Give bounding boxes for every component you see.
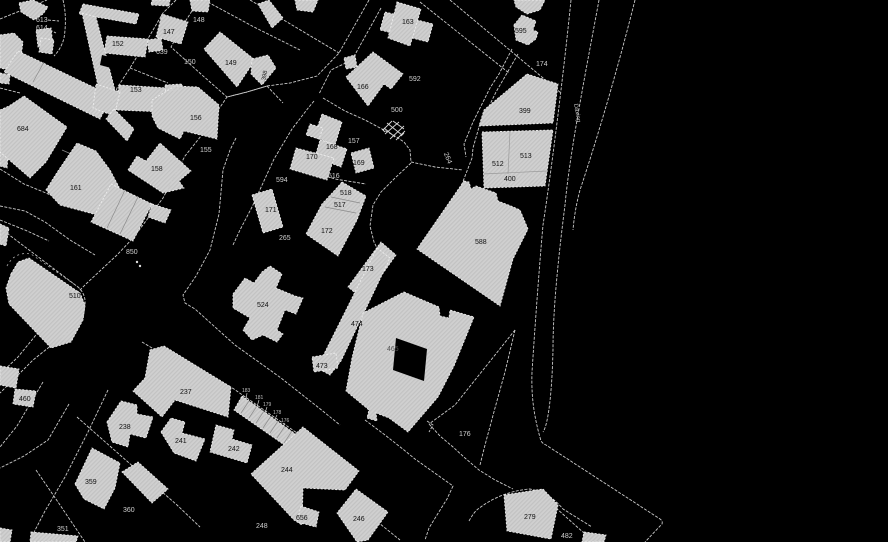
svg-text:181: 181 [255, 395, 264, 401]
svg-text:237: 237 [180, 389, 192, 396]
svg-text:510: 510 [69, 293, 81, 300]
svg-text:359: 359 [85, 479, 97, 486]
svg-text:473: 473 [316, 363, 328, 370]
svg-text:850: 850 [126, 249, 138, 256]
svg-text:614: 614 [36, 25, 48, 32]
svg-text:149: 149 [225, 60, 237, 67]
svg-text:166: 166 [357, 84, 369, 91]
svg-text:176: 176 [281, 418, 290, 424]
svg-text:148: 148 [193, 17, 205, 24]
svg-text:241: 241 [175, 438, 187, 445]
svg-text:265: 265 [279, 235, 291, 242]
svg-text:351: 351 [57, 526, 69, 533]
svg-text:179: 179 [263, 402, 272, 408]
svg-text:613: 613 [36, 17, 48, 24]
svg-text:157: 157 [348, 138, 360, 145]
svg-text:168: 168 [326, 144, 338, 151]
svg-text:482: 482 [561, 533, 573, 540]
svg-text:244: 244 [281, 467, 293, 474]
svg-text:161: 161 [70, 185, 82, 192]
svg-text:516: 516 [328, 173, 340, 180]
svg-text:176: 176 [459, 431, 471, 438]
svg-text:513: 513 [520, 153, 532, 160]
svg-text:465: 465 [387, 346, 399, 353]
svg-text:684: 684 [17, 126, 29, 133]
svg-text:474: 474 [351, 321, 363, 328]
svg-text:588: 588 [475, 239, 487, 246]
svg-text:360: 360 [123, 507, 135, 514]
svg-text:170: 170 [306, 154, 318, 161]
svg-text:172: 172 [321, 228, 333, 235]
svg-text:500: 500 [391, 107, 403, 114]
svg-text:154: 154 [168, 86, 180, 93]
svg-text:399: 399 [519, 108, 531, 115]
svg-text:248: 248 [256, 523, 268, 530]
svg-text:512: 512 [492, 161, 504, 168]
svg-text:460: 460 [19, 396, 31, 403]
svg-text:592: 592 [409, 76, 421, 83]
svg-text:156: 156 [190, 115, 202, 122]
svg-text:595: 595 [515, 28, 527, 35]
svg-text:238: 238 [119, 424, 131, 431]
svg-text:178: 178 [273, 410, 282, 416]
svg-text:169: 169 [353, 160, 365, 167]
svg-text:594: 594 [276, 177, 288, 184]
svg-text:153: 153 [130, 87, 142, 94]
svg-text:174: 174 [536, 61, 548, 68]
svg-text:152: 152 [112, 41, 124, 48]
svg-text:158: 158 [151, 166, 163, 173]
svg-text:518: 518 [340, 190, 352, 197]
svg-text:246: 246 [353, 516, 365, 523]
svg-text:171: 171 [265, 207, 277, 214]
svg-text:656: 656 [296, 515, 308, 522]
svg-text:147: 147 [163, 29, 175, 36]
svg-text:183: 183 [242, 388, 251, 394]
svg-text:517: 517 [334, 202, 346, 209]
svg-text:150: 150 [184, 59, 196, 66]
svg-text:400: 400 [504, 176, 516, 183]
svg-text:524: 524 [257, 302, 269, 309]
svg-text:155: 155 [200, 147, 212, 154]
svg-text:163: 163 [402, 19, 414, 26]
svg-text:279: 279 [524, 514, 536, 521]
svg-text:639: 639 [156, 49, 168, 56]
svg-text:173: 173 [362, 266, 374, 273]
svg-text:242: 242 [228, 446, 240, 453]
